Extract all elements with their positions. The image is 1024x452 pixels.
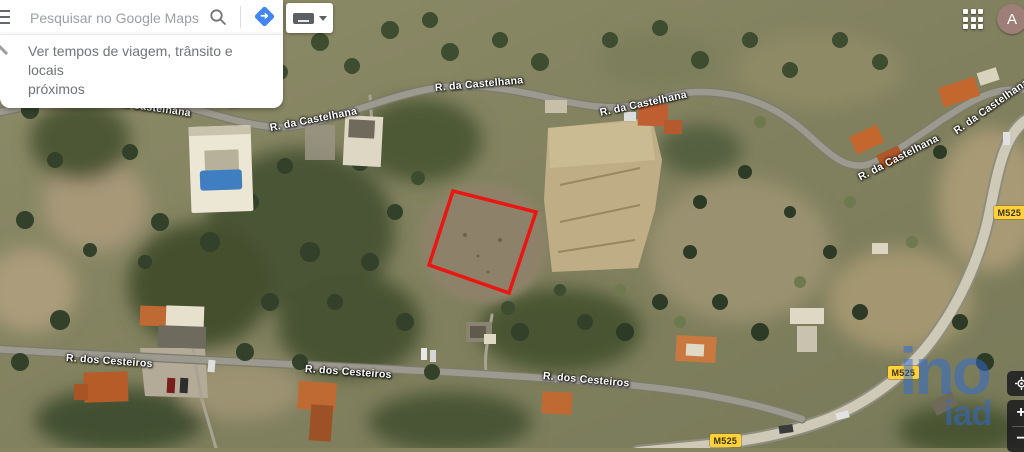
toolbar-divider (240, 6, 241, 28)
chevron-down-icon (319, 16, 327, 21)
route-badge-m525-2: M525 (888, 366, 919, 379)
keyboard-icon (293, 13, 314, 24)
google-apps-grid-icon[interactable] (963, 9, 983, 29)
search-card: ➜ (0, 0, 283, 34)
zoom-out-button[interactable]: − (1007, 427, 1024, 452)
menu-icon[interactable] (0, 10, 10, 24)
search-icon[interactable] (208, 7, 230, 29)
my-location-icon (1015, 377, 1024, 390)
route-badge-m525-3: M525 (710, 434, 741, 447)
directions-button[interactable]: ➜ (247, 0, 281, 34)
route-badge-m525-1: M525 (994, 206, 1024, 219)
zoom-in-button[interactable]: + (1007, 400, 1024, 426)
account-avatar[interactable]: A (997, 4, 1024, 34)
suggestion-line1: Ver tempos de viagem, trânsito e locais (28, 42, 269, 80)
suggestion-line2: próximos (28, 80, 269, 99)
search-input[interactable] (28, 6, 207, 30)
zoom-controls: + − (1007, 400, 1024, 452)
directions-arrow-icon: ➜ (257, 9, 272, 24)
suggestion-item[interactable]: Ver tempos de viagem, trânsito e locais … (0, 34, 283, 108)
my-location-button[interactable] (1007, 371, 1024, 396)
suggestion-icon (0, 44, 8, 55)
input-tools-button[interactable] (286, 3, 333, 33)
